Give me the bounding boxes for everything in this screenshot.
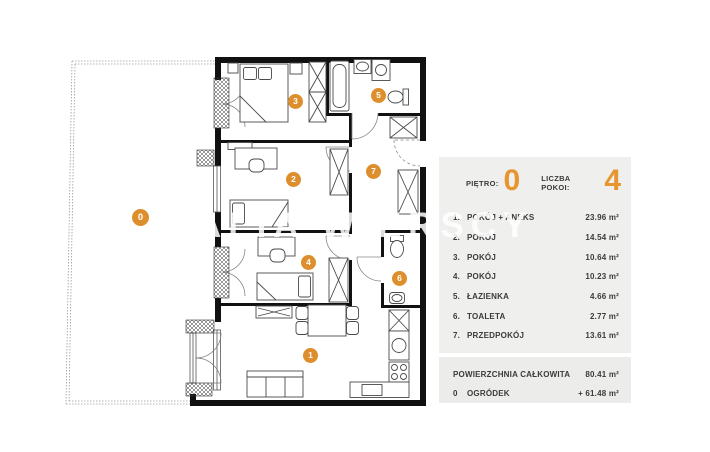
toilet-bathroom-icon bbox=[388, 89, 409, 105]
desk-room4-icon bbox=[258, 237, 295, 262]
badge-room-2: 2 bbox=[286, 172, 301, 187]
badge-hallway: 7 bbox=[366, 164, 381, 179]
wardrobe-room2-icon bbox=[330, 149, 348, 195]
bathtub-icon bbox=[330, 61, 349, 111]
badge-garden: 0 bbox=[132, 209, 149, 226]
room-row: 2. POKÓJ 14.54 m² bbox=[453, 228, 619, 248]
room-row: 4. POKÓJ 10.23 m² bbox=[453, 267, 619, 287]
wardrobe-hall-icon bbox=[398, 170, 418, 214]
sideboard-icon bbox=[256, 306, 292, 318]
room-row: 6. TOALETA 2.77 m² bbox=[453, 306, 619, 326]
cabinet-hall-icon bbox=[390, 117, 417, 138]
sink-icon bbox=[354, 60, 371, 74]
badge-room-4: 4 bbox=[301, 255, 316, 270]
fridge-icon bbox=[389, 310, 409, 331]
toilet-wc-icon bbox=[391, 236, 404, 258]
kitchen-counter-icon bbox=[350, 382, 409, 398]
dining-table-icon bbox=[296, 305, 359, 336]
garden-area-row: 0 OGRÓDEK + 61.48 m² bbox=[439, 384, 631, 403]
washer-icon bbox=[372, 60, 390, 81]
floor-indicator: PIĘTRO: 0 bbox=[466, 170, 520, 196]
panel-header: PIĘTRO: 0 LICZBA POKOI: 4 bbox=[439, 157, 631, 196]
desk-room2-icon bbox=[228, 143, 277, 173]
floorplan-page: 0 1 2 3 4 5 6 7 PIĘTRO: 0 LICZBA POKOI: … bbox=[0, 0, 710, 452]
bed-room4-icon bbox=[257, 273, 313, 300]
wardrobe-room4-icon bbox=[329, 258, 348, 302]
rooms-count-value: 4 bbox=[604, 166, 621, 196]
wardrobe-room3-icon bbox=[309, 62, 326, 122]
entrance-door bbox=[394, 140, 420, 166]
kitchen-sink-icon bbox=[389, 331, 409, 360]
badge-bathroom: 5 bbox=[371, 88, 386, 103]
total-area-row: POWIERZCHNIA CAŁKOWITA 80.41 m² bbox=[439, 365, 631, 384]
room-row: 1. POKÓJ + ANEKS 23.96 m² bbox=[453, 208, 619, 228]
stove-icon bbox=[389, 362, 409, 382]
room-list: 1. POKÓJ + ANEKS 23.96 m² 2. POKÓJ 14.54… bbox=[439, 208, 631, 346]
bed-room2-icon bbox=[230, 200, 288, 227]
floor-label: PIĘTRO: bbox=[466, 179, 499, 188]
room-row: 5. ŁAZIENKA 4.66 m² bbox=[453, 287, 619, 307]
info-panel: PIĘTRO: 0 LICZBA POKOI: 4 1. POKÓJ + ANE… bbox=[439, 157, 631, 353]
badge-room-3: 3 bbox=[288, 94, 303, 109]
sofa-icon bbox=[247, 371, 303, 397]
room-row: 7. PRZEDPOKÓJ 13.61 m² bbox=[453, 326, 619, 346]
badge-toilet: 6 bbox=[392, 271, 407, 286]
rooms-count-indicator: LICZBA POKOI: 4 bbox=[541, 170, 621, 196]
badge-living-room: 1 bbox=[303, 348, 318, 363]
rooms-count-label: LICZBA POKOI: bbox=[541, 174, 599, 192]
room-row: 3. POKÓJ 10.64 m² bbox=[453, 247, 619, 267]
floor-value: 0 bbox=[504, 166, 521, 196]
toilet-sink-icon bbox=[390, 293, 405, 304]
bed-room3-icon bbox=[228, 63, 302, 122]
totals-panel: POWIERZCHNIA CAŁKOWITA 80.41 m² 0 OGRÓDE… bbox=[439, 357, 631, 403]
